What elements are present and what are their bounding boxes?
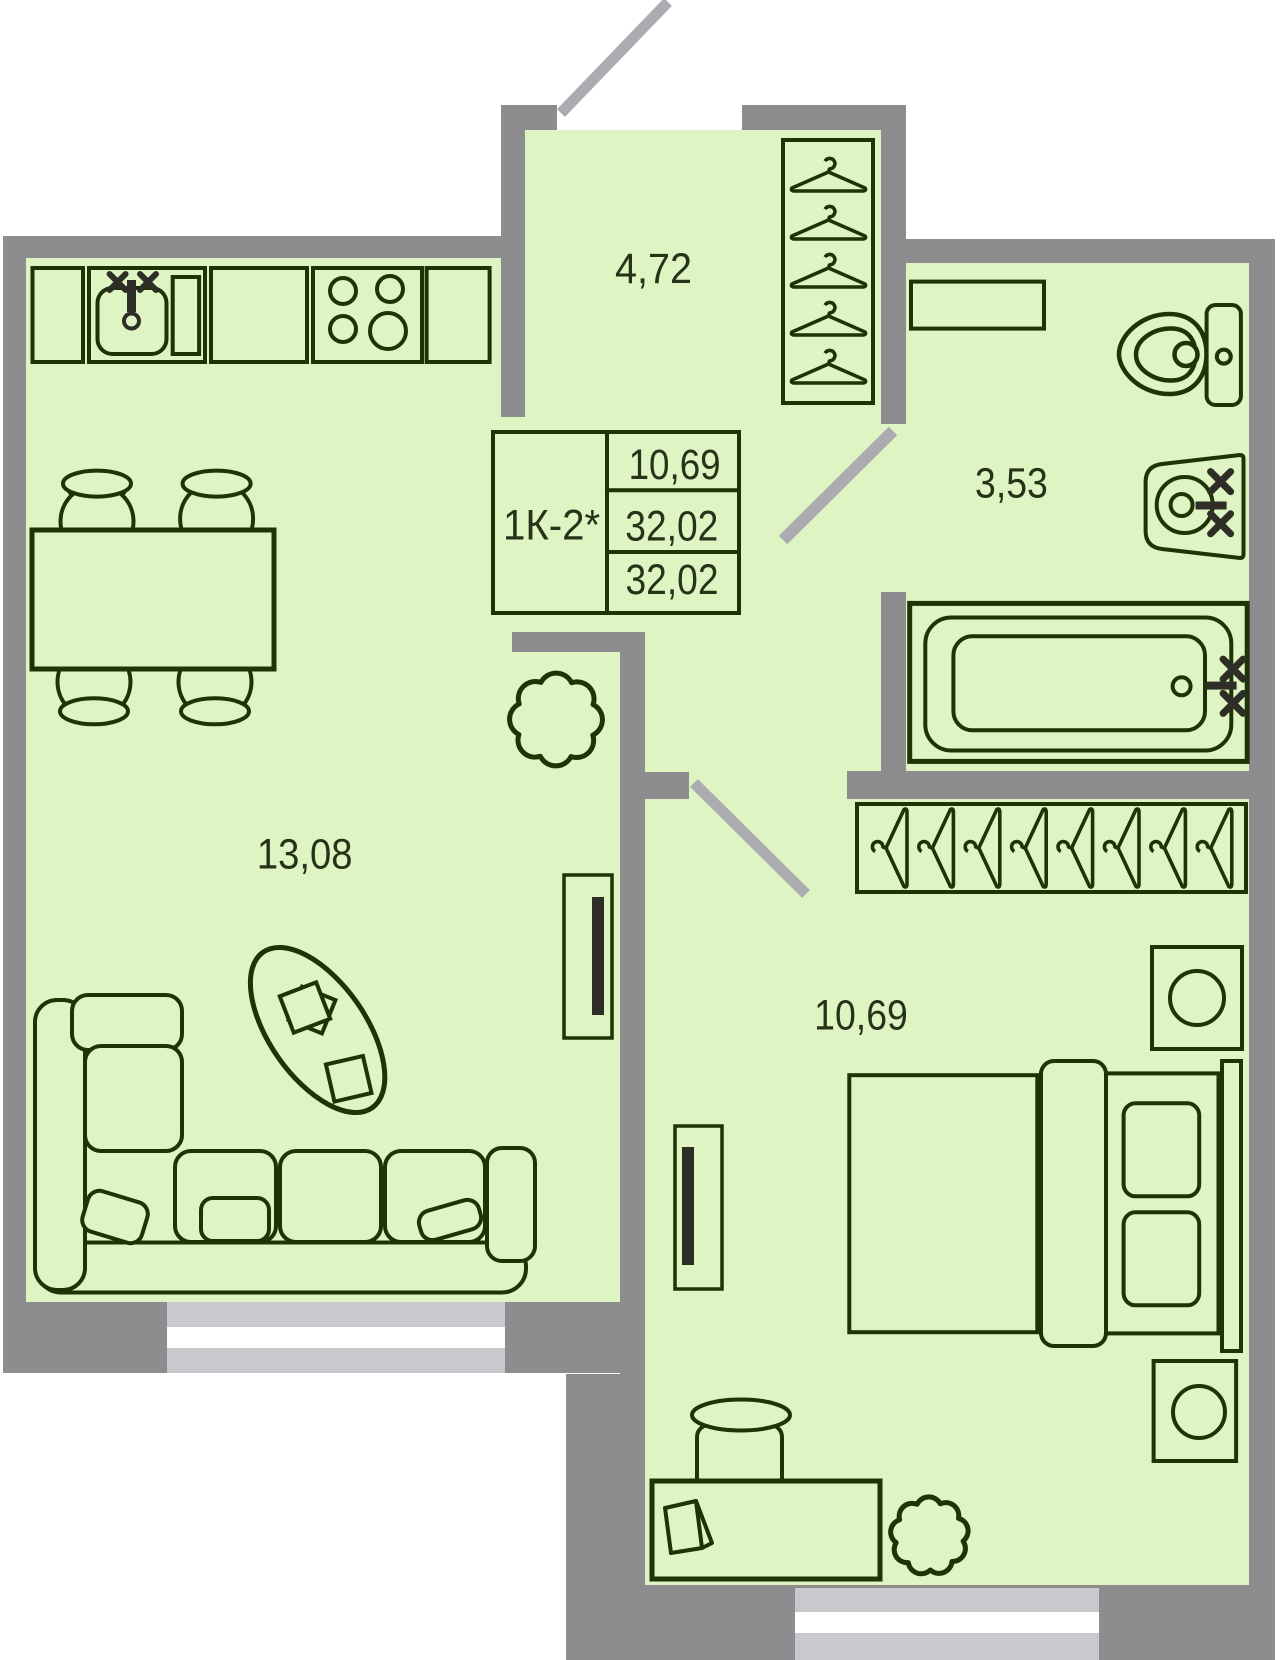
- svg-text:13,08: 13,08: [257, 832, 353, 879]
- svg-text:4,72: 4,72: [615, 246, 692, 293]
- svg-text:3,53: 3,53: [975, 461, 1048, 508]
- svg-text:32,02: 32,02: [626, 557, 719, 604]
- svg-text:10,69: 10,69: [814, 993, 908, 1040]
- svg-text:32,02: 32,02: [625, 503, 718, 550]
- svg-text:10,69: 10,69: [629, 442, 721, 489]
- svg-text:1К-2*: 1К-2*: [503, 502, 600, 549]
